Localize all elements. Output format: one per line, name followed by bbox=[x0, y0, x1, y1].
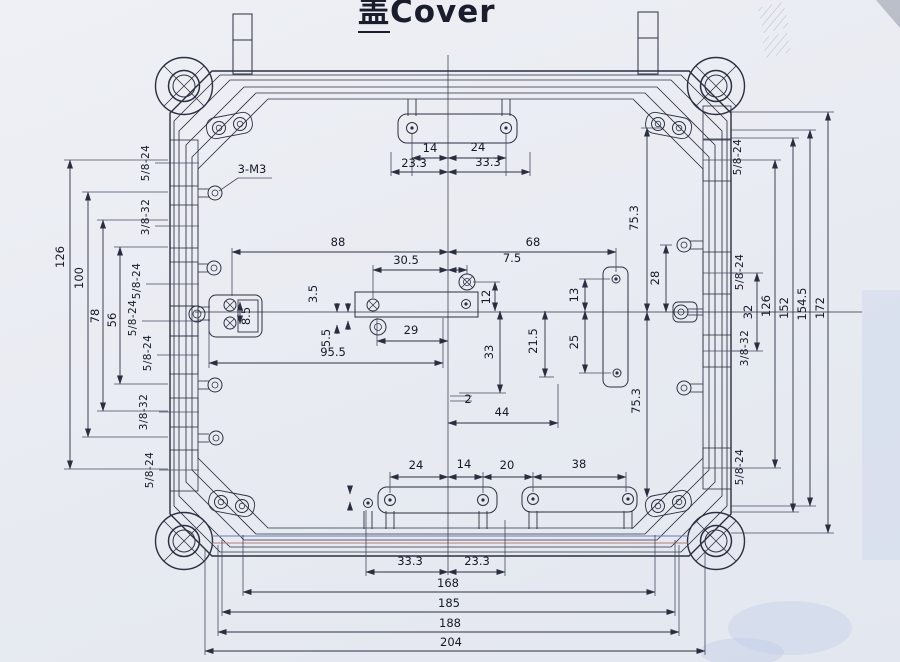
slot-hole bbox=[410, 126, 413, 129]
dim-label-L100: 100 bbox=[72, 267, 86, 289]
dim-label-R32: 32 bbox=[741, 305, 755, 320]
top-slot bbox=[398, 114, 517, 143]
dim-label-c85: 8.5 bbox=[239, 307, 253, 325]
pin-hole bbox=[366, 501, 369, 504]
dim-label-t233: 23.3 bbox=[401, 156, 427, 170]
engineering-drawing-page: 盖Cover 142423.333.3886830.57.52995.54422… bbox=[0, 0, 900, 662]
dim-label-R152: 152 bbox=[777, 297, 791, 319]
dim-label-bb233: 23.3 bbox=[464, 554, 490, 568]
scan-stain bbox=[758, 2, 789, 33]
dim-label-L78: 78 bbox=[88, 309, 102, 324]
corner-boss bbox=[655, 503, 661, 509]
slot-hole bbox=[615, 371, 618, 374]
slot-hole bbox=[481, 498, 484, 501]
dim-label-rt3: 3/8-32 bbox=[739, 330, 751, 366]
dim-label-c215: 21.5 bbox=[526, 328, 540, 354]
dim-label-t24: 24 bbox=[471, 140, 486, 154]
wall-boss bbox=[212, 190, 218, 196]
dim-label-c12: 12 bbox=[479, 290, 493, 305]
dim-label-b24: 24 bbox=[409, 458, 424, 472]
corner-boss bbox=[215, 496, 228, 509]
dim-label-c2a: 2 bbox=[464, 392, 471, 406]
wall-boss bbox=[208, 378, 222, 392]
wall-boss bbox=[212, 382, 218, 388]
dim-label-c88: 88 bbox=[331, 235, 346, 249]
dim-label-c55: 5.5 bbox=[319, 329, 333, 347]
dim-label-rt1: 5/8-24 bbox=[732, 139, 744, 175]
dim-label-c44: 44 bbox=[495, 405, 510, 419]
dim-label-bb333: 33.3 bbox=[397, 554, 423, 568]
corner-boss bbox=[237, 121, 243, 127]
extension-line bbox=[219, 178, 238, 191]
dim-label-bb204: 204 bbox=[440, 635, 462, 649]
dim-label-c75: 7.5 bbox=[503, 251, 521, 265]
dim-label-lt6: 3/8-32 bbox=[138, 394, 150, 430]
slot-hole bbox=[626, 497, 629, 500]
dim-label-bb185: 185 bbox=[438, 596, 460, 610]
part-outline bbox=[174, 75, 727, 552]
center-boss bbox=[370, 319, 386, 335]
corner-boss bbox=[673, 496, 686, 509]
corner-boss bbox=[676, 125, 682, 131]
top-tab-right bbox=[638, 12, 658, 74]
pin-hole bbox=[464, 302, 467, 305]
dim-label-b14: 14 bbox=[457, 457, 472, 471]
dim-label-lt5: 5/8-24 bbox=[142, 335, 154, 371]
corner-boss bbox=[652, 500, 665, 513]
dim-label-bb188: 188 bbox=[439, 616, 461, 630]
corner-boss bbox=[218, 499, 224, 505]
corner-boss bbox=[239, 503, 245, 509]
dim-label-rt4: 5/8-24 bbox=[734, 449, 746, 485]
dim-label-lt3: 5/8-24 bbox=[131, 263, 143, 299]
dim-label-lt4: 5/8-24 bbox=[127, 300, 139, 336]
wall-boss bbox=[681, 385, 687, 391]
wall-boss bbox=[677, 381, 691, 395]
dim-label-c33: 33 bbox=[482, 345, 496, 360]
wall-boss bbox=[677, 238, 691, 252]
dim-label-b38: 38 bbox=[572, 457, 587, 471]
wall-boss bbox=[208, 186, 222, 200]
dim-label-c68: 68 bbox=[526, 235, 541, 249]
dim-label-R1545: 154.5 bbox=[795, 288, 809, 321]
dim-label-bb168: 168 bbox=[437, 576, 459, 590]
dim-label-L56: 56 bbox=[105, 313, 119, 328]
top-tab-left bbox=[233, 14, 252, 74]
dim-label-t14: 14 bbox=[423, 141, 438, 155]
dim-label-R126: 126 bbox=[759, 295, 773, 317]
dim-label-r753t: 75.3 bbox=[627, 205, 641, 231]
wall-boss bbox=[207, 261, 221, 275]
part-outline bbox=[192, 93, 709, 534]
dim-label-c28: 28 bbox=[648, 271, 662, 286]
scan-stain bbox=[762, 32, 791, 58]
dim-label-rt2: 5/8-24 bbox=[734, 254, 746, 290]
dim-label-lt2: 3/8-32 bbox=[140, 199, 152, 235]
bracket-boss bbox=[193, 310, 201, 318]
cover-part-drawing: 142423.333.3886830.57.52995.544224142038… bbox=[0, 0, 900, 662]
dim-label-t333: 33.3 bbox=[475, 155, 501, 169]
dim-label-c305: 30.5 bbox=[393, 253, 419, 267]
wall-boss bbox=[213, 435, 219, 441]
wall-boss bbox=[209, 431, 223, 445]
wall-boss bbox=[681, 242, 687, 248]
slot-hole bbox=[388, 498, 391, 501]
dim-label-m3: 3-M3 bbox=[238, 162, 267, 176]
left-bracket bbox=[209, 295, 262, 337]
corner-boss bbox=[673, 122, 686, 135]
dim-label-c35: 3.5 bbox=[306, 285, 320, 303]
slot-hole bbox=[504, 126, 507, 129]
dim-label-lt1: 5/8-24 bbox=[140, 145, 152, 181]
dim-label-lt7: 5/8-24 bbox=[144, 452, 156, 488]
wall-boss bbox=[211, 265, 217, 271]
corner-boss bbox=[213, 122, 226, 135]
slot-hole bbox=[531, 497, 534, 500]
dim-label-c13: 13 bbox=[567, 288, 581, 303]
slot-hole bbox=[614, 277, 617, 280]
dim-label-r753b: 75.3 bbox=[629, 388, 643, 414]
dim-label-R172: 172 bbox=[813, 297, 827, 319]
dim-label-c29: 29 bbox=[404, 323, 419, 337]
dim-label-L126: 126 bbox=[53, 246, 67, 268]
dim-label-c25: 25 bbox=[567, 335, 581, 350]
corner-boss bbox=[234, 118, 247, 131]
center-boss bbox=[375, 324, 382, 331]
bottom-slot-right bbox=[522, 487, 637, 512]
page-corner-mark bbox=[876, 0, 900, 28]
scan-stain bbox=[862, 290, 900, 560]
part-outline bbox=[198, 99, 703, 528]
dim-label-b20: 20 bbox=[500, 458, 515, 472]
part-outline bbox=[186, 87, 715, 540]
